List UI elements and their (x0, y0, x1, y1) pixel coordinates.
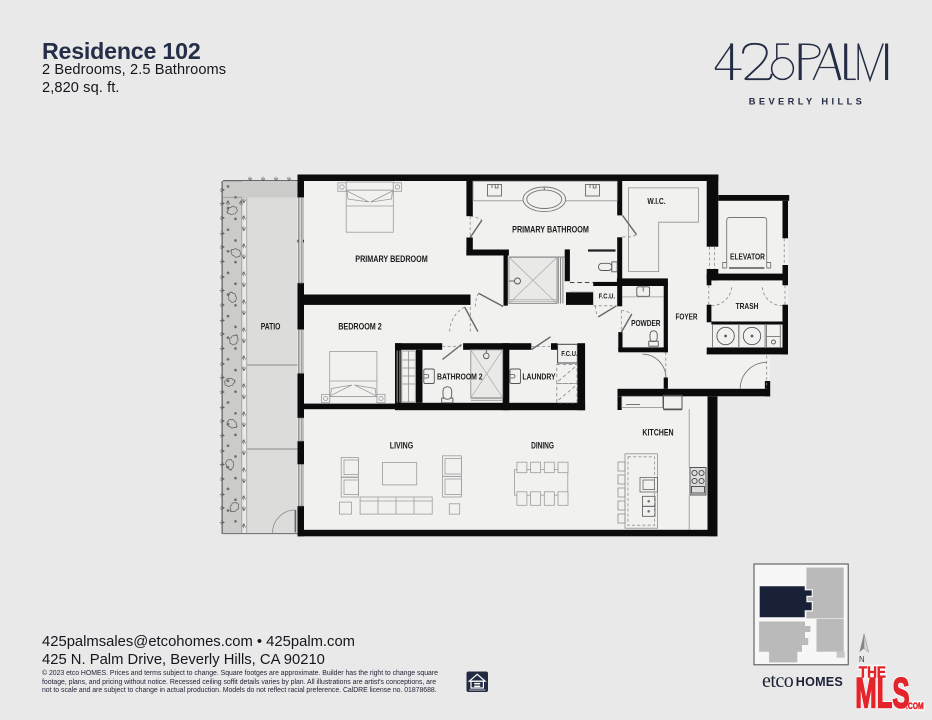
svg-text:PRIMARY BATHROOM: PRIMARY BATHROOM (512, 225, 589, 235)
svg-text:.COM: .COM (906, 701, 924, 711)
svg-text:N: N (859, 655, 865, 664)
svg-text:etco: etco (762, 670, 794, 692)
svg-text:HOMES: HOMES (796, 675, 843, 689)
svg-text:BATHROOM 2: BATHROOM 2 (437, 372, 483, 382)
svg-text:ELEVATOR: ELEVATOR (730, 252, 765, 262)
svg-text:POWDER: POWDER (631, 318, 661, 328)
svg-text:BEVERLY HILLS: BEVERLY HILLS (749, 97, 866, 107)
svg-text:PRIMARY BEDROOM: PRIMARY BEDROOM (355, 254, 428, 264)
svg-text:W.I.C.: W.I.C. (647, 197, 665, 207)
svg-text:F.C.U.: F.C.U. (599, 293, 616, 301)
svg-text:TRASH: TRASH (736, 301, 759, 311)
svg-text:MLS: MLS (855, 668, 909, 717)
svg-text:FOYER: FOYER (676, 311, 698, 321)
svg-text:F.C.U.: F.C.U. (561, 350, 578, 358)
svg-text:KITCHEN: KITCHEN (642, 428, 673, 438)
svg-text:DINING: DINING (531, 440, 554, 450)
svg-text:PATIO: PATIO (261, 322, 281, 332)
svg-text:LIVING: LIVING (390, 441, 413, 451)
svg-text:LAUNDRY: LAUNDRY (522, 372, 556, 382)
svg-text:BEDROOM 2: BEDROOM 2 (338, 322, 382, 332)
